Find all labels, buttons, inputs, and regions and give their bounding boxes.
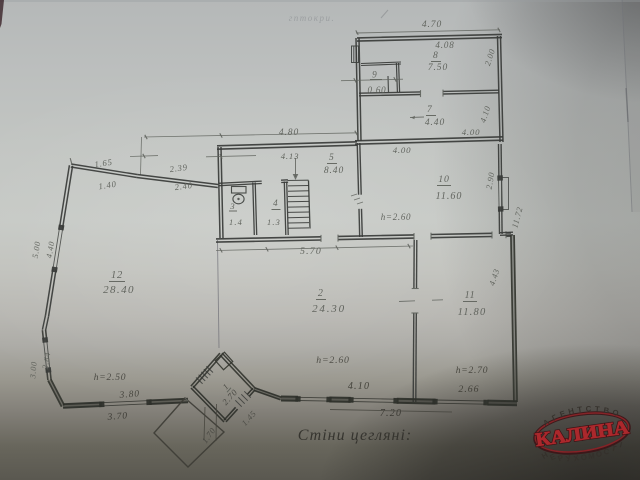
svg-text:3.80: 3.80: [118, 389, 140, 400]
svg-text:4.10: 4.10: [348, 381, 370, 392]
svg-text:1.40: 1.40: [98, 179, 118, 192]
svg-text:Т: Т: [595, 405, 601, 414]
svg-text:1.65: 1.65: [94, 157, 114, 170]
svg-text:0.60: 0.60: [368, 85, 387, 95]
svg-text:2.90: 2.90: [485, 171, 497, 190]
svg-text:4.43: 4.43: [488, 268, 502, 287]
svg-text:У: У: [565, 453, 572, 463]
svg-text:3: 3: [229, 201, 236, 211]
svg-text:4.80: 4.80: [279, 128, 299, 138]
svg-text:Т: Т: [577, 405, 583, 415]
svg-text:h=2.60: h=2.60: [381, 212, 412, 222]
svg-text:1.70: 1.70: [200, 426, 217, 445]
svg-text:9: 9: [372, 70, 378, 80]
svg-text:Т: Т: [611, 444, 617, 454]
svg-text:2.39: 2.39: [169, 162, 188, 174]
svg-text:Н: Н: [567, 406, 575, 416]
svg-text:28.40: 28.40: [103, 284, 135, 296]
svg-text:8: 8: [433, 51, 439, 61]
svg-text:гптокри.: гптокри.: [289, 13, 335, 23]
svg-text:7.50: 7.50: [428, 63, 448, 73]
svg-text:4.00: 4.00: [462, 127, 481, 137]
svg-text:h=2.60: h=2.60: [316, 355, 349, 366]
svg-text:11.80: 11.80: [458, 307, 487, 318]
svg-text:4.70: 4.70: [422, 20, 442, 30]
svg-text:4.13: 4.13: [281, 151, 300, 161]
svg-text:Стіни цегляні:: Стіни цегляні:: [298, 427, 413, 444]
svg-text:4: 4: [273, 198, 279, 208]
svg-text:8.40: 8.40: [324, 166, 344, 176]
svg-text:4.10: 4.10: [479, 104, 493, 123]
svg-text:1.45: 1.45: [240, 409, 258, 428]
svg-text:3.00: 3.00: [28, 361, 39, 380]
svg-text:2.40: 2.40: [174, 180, 193, 192]
svg-text:2.66: 2.66: [458, 384, 479, 395]
svg-text:10: 10: [438, 174, 449, 185]
svg-text:1.4: 1.4: [229, 218, 243, 227]
svg-text:4.00: 4.00: [393, 145, 412, 155]
svg-text:2.70: 2.70: [220, 387, 239, 407]
svg-text:Х: Х: [573, 453, 581, 463]
svg-text:4.08: 4.08: [435, 40, 454, 50]
svg-text:О: О: [596, 450, 602, 459]
svg-text:12: 12: [111, 270, 123, 281]
svg-text:11.60: 11.60: [436, 191, 463, 202]
svg-text:2.64: 2.64: [41, 351, 53, 369]
svg-text:h=2.70: h=2.70: [456, 366, 489, 376]
svg-text:3.70: 3.70: [106, 411, 128, 422]
svg-text:5.00: 5.00: [31, 240, 43, 258]
svg-text:С: С: [603, 447, 610, 456]
svg-text:4.40: 4.40: [425, 118, 445, 128]
svg-text:М: М: [588, 451, 595, 460]
svg-text:С: С: [585, 404, 591, 413]
svg-text:11.72: 11.72: [510, 206, 524, 229]
svg-text:1.3: 1.3: [267, 218, 281, 227]
svg-text:5: 5: [329, 153, 335, 163]
svg-text:2.00: 2.00: [483, 47, 497, 66]
svg-text:24.30: 24.30: [312, 303, 346, 315]
svg-text:h=2.50: h=2.50: [94, 373, 127, 383]
svg-text:2: 2: [318, 288, 324, 299]
svg-text:7: 7: [427, 105, 433, 115]
svg-text:7.20: 7.20: [380, 408, 402, 419]
svg-text:5.70: 5.70: [300, 246, 322, 257]
svg-text:О: О: [580, 453, 587, 463]
svg-text:11: 11: [465, 290, 476, 301]
